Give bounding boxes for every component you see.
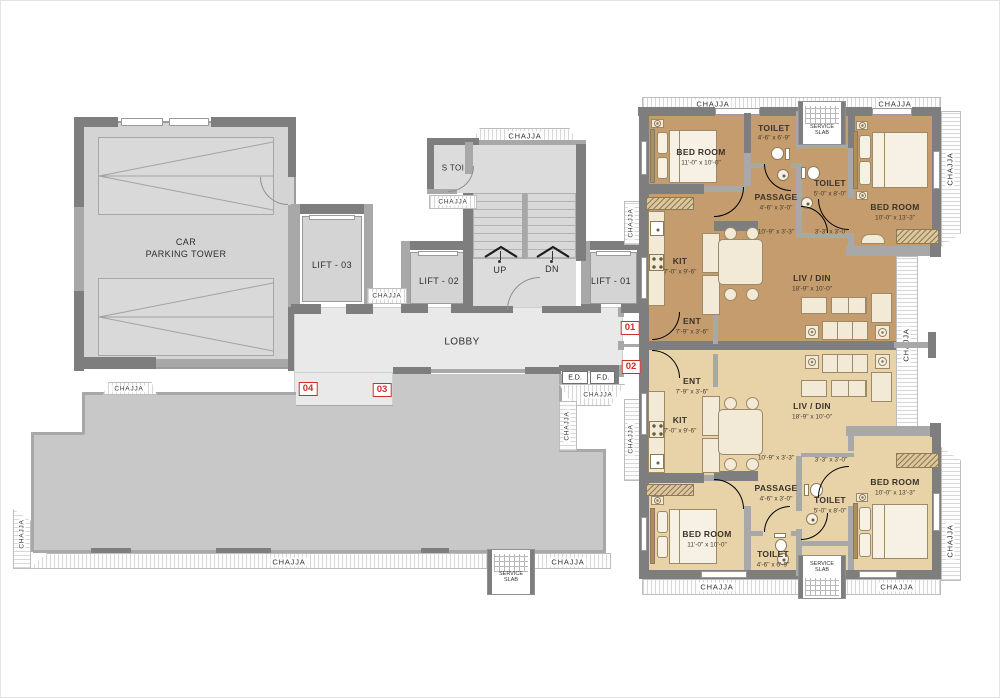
wall [288, 119, 296, 177]
chajja-label: CHAJJA [549, 558, 586, 567]
wall [642, 473, 704, 483]
unit-marker-04: 04 [299, 382, 318, 396]
passage-dim: 10'-9" x 3'-3" [758, 455, 794, 462]
wall [615, 365, 619, 384]
kitchen-sink-icon [650, 221, 664, 236]
room-label: ENT [683, 376, 701, 386]
fd-label: F.D. [597, 375, 609, 382]
chajja-label: CHAJJA [946, 522, 955, 559]
chajja-label: CHAJJA [370, 293, 403, 300]
window [701, 571, 747, 578]
window [121, 118, 163, 126]
service-slab [798, 101, 846, 145]
plant-icon [859, 122, 866, 129]
wall [82, 392, 85, 434]
toilet-icon [771, 147, 784, 160]
pillow-icon [859, 507, 871, 531]
party-wall [639, 341, 896, 350]
down-arrow-icon [534, 244, 572, 263]
wall [74, 357, 156, 369]
window [641, 393, 647, 435]
wall [750, 531, 763, 536]
wall [542, 306, 586, 313]
room-label: PASSAGE [754, 192, 797, 202]
room-label: LIV / DIN [793, 401, 831, 411]
wall [156, 359, 296, 367]
chajja-label: CHAJJA [698, 583, 735, 592]
wall [796, 541, 854, 546]
kitchen-sink-icon [650, 454, 664, 469]
room-label: ENT [683, 316, 701, 326]
service-slab-label: SERVICESLAB [810, 561, 834, 574]
pillow-icon [657, 132, 668, 154]
wardrobe-icon [896, 229, 939, 244]
room-label: KIT [673, 415, 688, 425]
wall [74, 117, 84, 207]
service-slab-label: SERVICESLAB [810, 124, 834, 137]
wall [713, 354, 718, 387]
plant-icon [808, 328, 816, 336]
wall [846, 246, 941, 256]
ed-label: E.D. [568, 375, 582, 382]
pillow-icon [859, 135, 871, 159]
chair-icon [724, 458, 737, 471]
wall [576, 144, 586, 261]
bed-icon [853, 131, 858, 189]
room-label: PASSAGE [754, 483, 797, 493]
toilet-icon [804, 484, 809, 496]
bench-icon [861, 234, 885, 244]
window [641, 257, 647, 299]
wall [638, 107, 715, 116]
window [872, 108, 912, 115]
room-dim: 4'-6" x 6'-9" [758, 135, 791, 142]
chair-icon [724, 288, 737, 301]
room-dim: 7'-0" x 9'-6" [664, 428, 697, 435]
window [169, 118, 209, 126]
lobby-label: LOBBY [444, 337, 479, 348]
plant-icon [878, 357, 887, 366]
toilet-icon [774, 533, 786, 538]
up-arrow-icon [482, 244, 520, 263]
pillow-icon [657, 536, 668, 558]
blanket-line [679, 509, 680, 564]
wall [31, 432, 34, 552]
room-dim: 7'-0" x 9'-6" [664, 269, 697, 276]
bed-icon [853, 503, 858, 559]
sofa-icon [822, 321, 868, 340]
room-dim: 5'-0" x 8'-0" [814, 508, 847, 515]
lift-03-cab [302, 216, 362, 302]
sofa-icon [831, 297, 867, 314]
s-toi-label: S TOI [442, 164, 465, 173]
wall [463, 193, 473, 313]
bed-icon [650, 508, 655, 564]
pillow-icon [657, 511, 668, 533]
chajja-band [941, 447, 961, 581]
stove-icon [649, 421, 664, 438]
wall [211, 117, 296, 127]
room-dim: 11'-0" x 10'-0" [687, 542, 727, 549]
room-dim: 11'-0" x 10'-0" [681, 160, 721, 167]
plant-icon [808, 358, 816, 366]
wardrobe-icon [896, 453, 939, 468]
chajja-label: CHAJJA [19, 517, 26, 550]
room-dim: 4'-6" x 3'-0" [760, 205, 793, 212]
up-label: UP [493, 265, 506, 275]
room-label: KIT [673, 256, 688, 266]
bed-icon [650, 129, 655, 183]
wall [463, 306, 513, 313]
toilet-icon [801, 167, 806, 179]
wall [642, 184, 704, 194]
chajja-label: CHAJJA [628, 206, 635, 239]
lift-01-label: LIFT - 01 [591, 276, 631, 286]
lift-02-label: LIFT - 02 [419, 276, 459, 286]
window [933, 151, 940, 189]
wall [930, 243, 941, 257]
plant-icon [878, 328, 887, 337]
wall [744, 153, 751, 186]
plant-icon [654, 120, 661, 127]
lift-door [596, 251, 631, 256]
armchair-icon [871, 372, 892, 402]
wall [750, 163, 763, 168]
car-platform-icon [98, 278, 274, 356]
pillow-icon [859, 161, 871, 185]
room-label: TOILET [758, 123, 790, 133]
stove-icon [649, 254, 664, 271]
room-dim: 4'-6" x 6'-9" [757, 562, 790, 569]
floor-plan: CAR PARKING TOWER LOBBY E.D. F.D. LIFT -… [0, 0, 1000, 698]
window [641, 141, 647, 175]
car-platform-icon [98, 137, 274, 215]
arrow-stem [552, 251, 553, 260]
plant-icon [654, 497, 661, 504]
mattress-icon [872, 132, 928, 188]
lift-03-label: LIFT - 03 [312, 260, 352, 270]
chajja-label: CHAJJA [436, 199, 469, 206]
wall [31, 432, 84, 435]
dining-table-icon [718, 409, 763, 455]
chajja-label: CHAJJA [878, 583, 915, 592]
window [859, 571, 897, 578]
wall [463, 140, 586, 145]
wall [744, 113, 751, 153]
room-dim: 7'-9" x 3'-6" [676, 389, 709, 396]
passage-dim: 10'-9" x 3'-3" [758, 229, 794, 236]
arrow-dot [550, 260, 553, 263]
room-dim: 4'-6" x 3'-0" [760, 496, 793, 503]
lift-door [309, 215, 355, 220]
passage-dim: 3'-3" x 3'-0" [815, 457, 848, 464]
room-label: BED ROOM [676, 147, 725, 157]
wall [848, 436, 854, 451]
chair-icon [746, 288, 759, 301]
wall [421, 548, 449, 553]
wall [603, 451, 606, 551]
wall [216, 548, 271, 553]
room-dim: 5'-0" x 8'-0" [814, 191, 847, 198]
chajja-label: CHAJJA [564, 409, 571, 442]
pillow-icon [859, 533, 871, 557]
toilet-icon [785, 148, 790, 160]
room-dim: 7'-9" x 3'-6" [676, 329, 709, 336]
room-dim: 18'-9" x 10'-0" [792, 414, 832, 421]
wall [744, 506, 751, 570]
armchair-icon [801, 297, 827, 314]
chajja-label: CHAJJA [581, 392, 614, 399]
plant-icon [859, 494, 866, 501]
wall [846, 426, 941, 436]
room-label: BED ROOM [870, 477, 919, 487]
chajja-label: CHAJJA [628, 422, 635, 455]
unit-marker-02: 02 [622, 360, 641, 374]
room-label: TOILET [814, 178, 846, 188]
arrow-stem [500, 251, 501, 260]
wall [401, 304, 428, 313]
mattress-icon [872, 504, 928, 559]
wall [291, 304, 321, 314]
wall [346, 304, 373, 314]
chajja-label: CHAJJA [270, 558, 307, 567]
chajja-label: CHAJJA [946, 150, 955, 187]
lift-door [418, 251, 458, 256]
car-parking-label: CAR [176, 237, 196, 247]
blanket-line [884, 132, 885, 188]
wall [431, 369, 526, 373]
wall [91, 548, 131, 553]
room-label: BED ROOM [870, 202, 919, 212]
unit-marker-01: 01 [621, 321, 640, 335]
sofa-icon [831, 380, 867, 397]
car-parking-label: PARKING TOWER [146, 249, 227, 259]
room-label: LIV / DIN [793, 273, 831, 283]
wall [713, 311, 718, 344]
room-dim: 18'-9" x 10'-0" [792, 286, 832, 293]
kitchen-platform [646, 197, 694, 210]
wall [427, 138, 434, 194]
window [641, 517, 647, 551]
wall [291, 204, 300, 314]
room-label: BED ROOM [682, 529, 731, 539]
wall [291, 204, 373, 214]
room-dim: 10'-0" x 13'-3" [875, 490, 915, 497]
armchair-icon [801, 380, 827, 397]
blanket-line [884, 504, 885, 559]
room-label: TOILET [814, 495, 846, 505]
chajja-label: CHAJJA [112, 386, 145, 393]
armchair-icon [871, 293, 892, 323]
wall [894, 342, 930, 348]
wardrobe-icon [646, 484, 694, 496]
plant-icon [859, 192, 866, 199]
stair-landing [473, 143, 576, 193]
wall [928, 332, 936, 358]
wall [848, 233, 854, 246]
room-label: TOILET [757, 549, 789, 559]
stair-divider [522, 193, 527, 259]
window [715, 108, 760, 115]
wall [74, 207, 84, 291]
sofa-icon [822, 354, 868, 373]
room-dim: 10'-0" x 13'-3" [875, 215, 915, 222]
arrow-dot [498, 260, 501, 263]
service-slab-label: SERVICESLAB [499, 571, 523, 584]
unit-marker-03: 03 [373, 383, 392, 397]
passage-dim: 3'-3" x 3'-0" [815, 229, 848, 236]
window [933, 493, 940, 531]
pillow-icon [657, 157, 668, 179]
dn-label: DN [545, 264, 559, 274]
dining-table-icon [718, 239, 763, 285]
